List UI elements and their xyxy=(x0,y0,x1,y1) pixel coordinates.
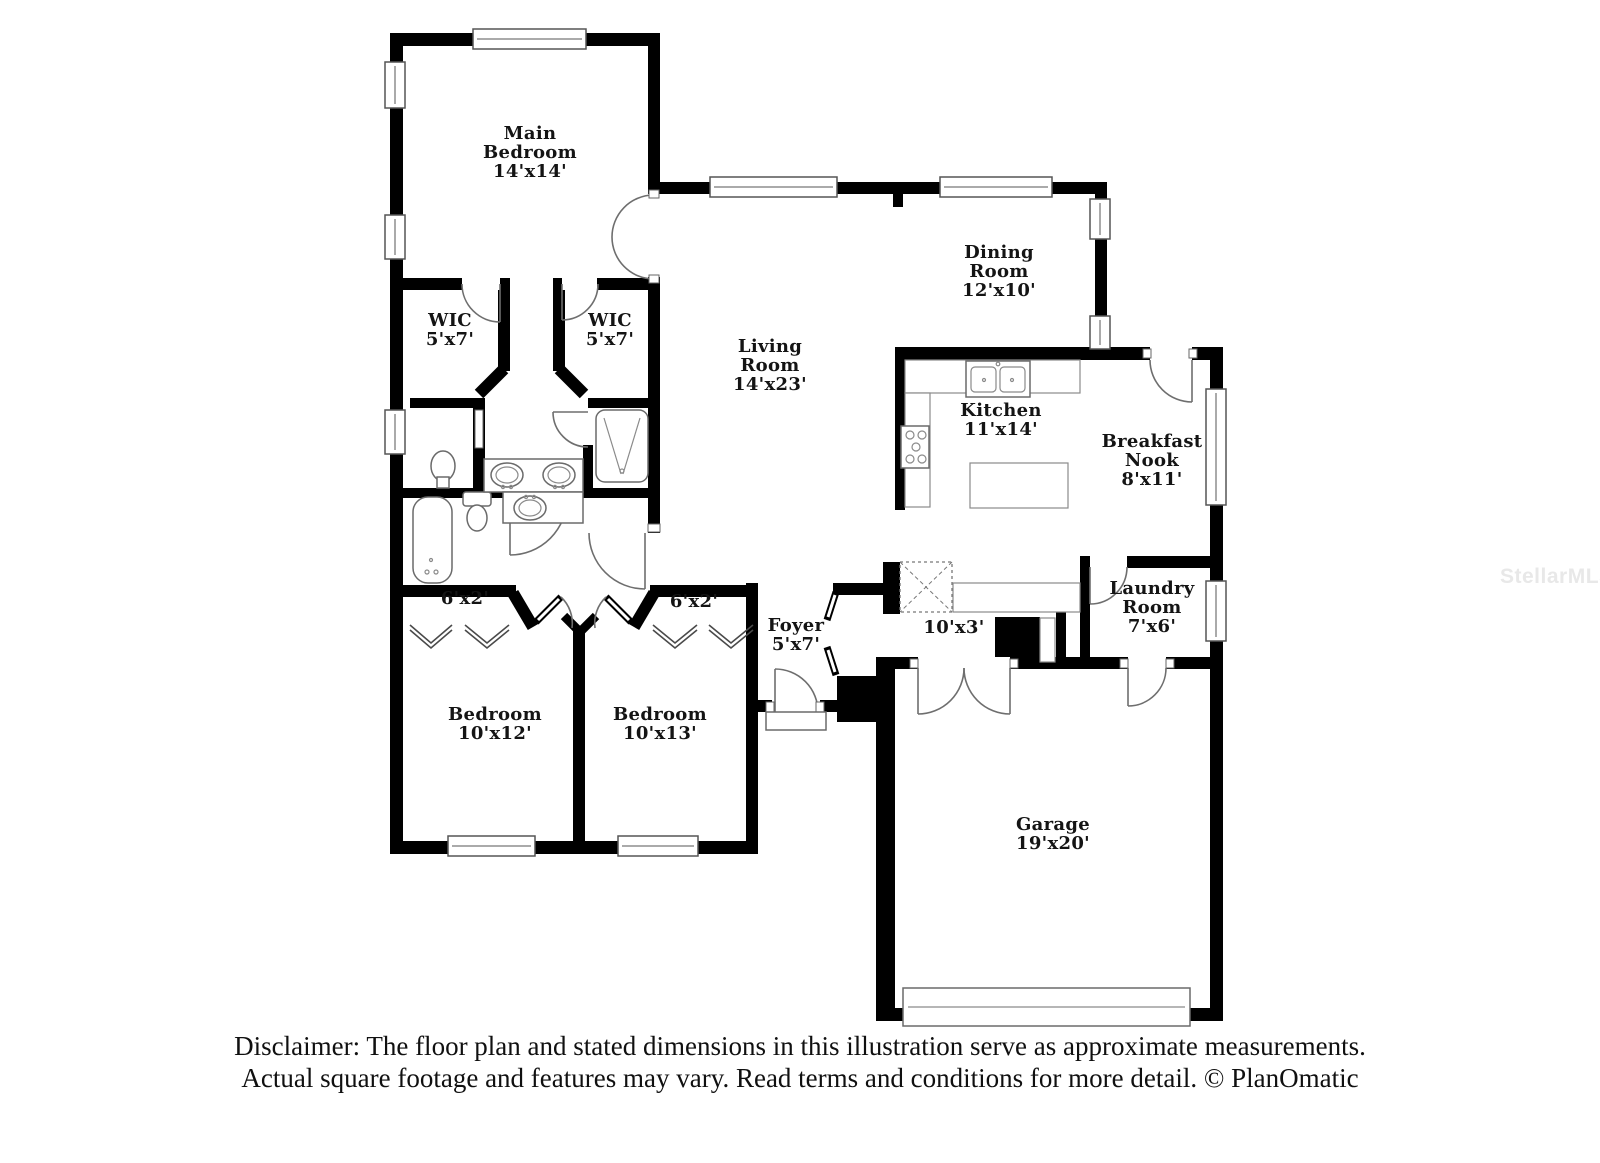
room-label-garage: Garage 19'x20' xyxy=(1016,815,1090,853)
window xyxy=(1090,316,1110,349)
water-heater-closet xyxy=(1040,618,1055,662)
window xyxy=(618,836,698,856)
double-vanity-icon xyxy=(484,459,583,492)
room-label-wic-1: WIC 5'x7' xyxy=(426,311,474,349)
garage-door-icon xyxy=(903,988,1190,1026)
disclaimer-text: Disclaimer: The floor plan and stated di… xyxy=(0,1030,1600,1094)
fixtures xyxy=(410,360,1190,1026)
room-label-closet-left: 6'x2' xyxy=(441,589,489,608)
window xyxy=(473,29,586,49)
room-label-bedroom-1: Bedroom 10'x12' xyxy=(448,705,542,743)
window xyxy=(448,836,535,856)
room-label-breakfast-nook: Breakfast Nook 8'x11' xyxy=(1102,432,1203,489)
disclaimer-line-2: Actual square footage and features may v… xyxy=(0,1062,1600,1094)
window xyxy=(1090,199,1110,239)
room-label-kitchen: Kitchen 11'x14' xyxy=(960,401,1041,439)
room-label-living-room: Living Room 14'x23' xyxy=(733,337,807,394)
window xyxy=(940,177,1052,197)
shower-icon xyxy=(596,410,648,482)
single-vanity-icon xyxy=(503,492,583,523)
stellar-mls-watermark: StellarMLS xyxy=(1500,565,1600,589)
hall-cabinet xyxy=(953,583,1080,612)
floor-plan-drawing xyxy=(0,0,1600,1163)
window xyxy=(1206,389,1226,505)
kitchen-sink-icon xyxy=(966,361,1030,397)
toilet-icon xyxy=(463,492,491,531)
disclaimer-line-1: Disclaimer: The floor plan and stated di… xyxy=(0,1030,1600,1062)
floor-plan-page: Main Bedroom 14'x14' WIC 5'x7' WIC 5'x7'… xyxy=(0,0,1600,1163)
room-label-foyer: Foyer 5'x7' xyxy=(768,616,825,654)
window xyxy=(710,177,837,197)
room-label-main-bedroom: Main Bedroom 14'x14' xyxy=(483,124,577,181)
room-label-dining-room: Dining Room 12'x10' xyxy=(962,243,1036,300)
window xyxy=(385,215,405,259)
window xyxy=(385,62,405,108)
pedestal-sink-icon xyxy=(431,451,455,488)
kitchen-island xyxy=(970,463,1068,508)
room-label-laundry-room: Laundry Room 7'x6' xyxy=(1109,579,1194,636)
ac-unit-icon xyxy=(900,562,952,612)
room-label-hall: 10'x3' xyxy=(923,618,984,637)
window xyxy=(385,410,405,454)
stove-icon xyxy=(901,426,929,468)
front-door-threshold xyxy=(766,712,826,730)
bathtub-icon xyxy=(413,497,452,583)
room-label-closet-right: 6'x2' xyxy=(670,592,718,611)
window xyxy=(1206,581,1226,641)
room-label-bedroom-2: Bedroom 10'x13' xyxy=(613,705,707,743)
room-label-wic-2: WIC 5'x7' xyxy=(586,311,634,349)
